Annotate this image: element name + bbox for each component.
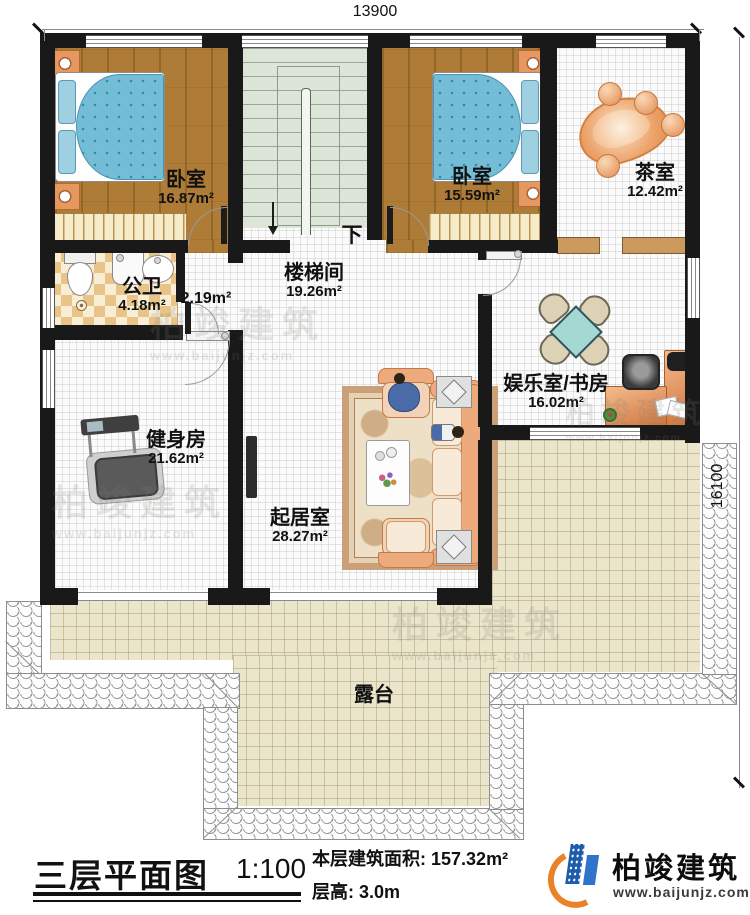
stairs-arrowhead bbox=[268, 226, 278, 235]
wall bbox=[540, 240, 557, 253]
pillow bbox=[521, 80, 539, 124]
wall bbox=[367, 33, 382, 240]
wall bbox=[208, 588, 270, 605]
wall bbox=[228, 33, 243, 263]
roof-tile-border bbox=[489, 703, 524, 810]
room-label-vestibule: 2.19m² bbox=[150, 290, 262, 308]
room-label-terrace: 露台 bbox=[318, 684, 430, 706]
title-underline bbox=[33, 892, 301, 896]
stairs-arrow bbox=[272, 202, 274, 226]
wall bbox=[478, 440, 492, 605]
room-name: 娱乐室/书房 bbox=[466, 373, 646, 395]
drawing-title: 三层平面图 bbox=[34, 849, 209, 897]
stool bbox=[634, 91, 658, 115]
treadmill-arm bbox=[88, 435, 93, 457]
roof-tile-border bbox=[489, 673, 737, 705]
room-label-study: 娱乐室/书房 16.02m² bbox=[466, 373, 646, 412]
terrace-floor bbox=[233, 655, 497, 806]
stairs-direction-text: 下 bbox=[337, 224, 367, 248]
stairs-rail bbox=[301, 88, 311, 235]
wall bbox=[228, 240, 290, 253]
side-table-inlay bbox=[441, 379, 466, 404]
room-name: 楼梯间 bbox=[258, 262, 370, 284]
room-name: 露台 bbox=[318, 684, 430, 706]
wall bbox=[40, 588, 78, 605]
person-sitting-body bbox=[388, 382, 420, 412]
roof-tile-border bbox=[6, 601, 42, 675]
window bbox=[242, 35, 368, 48]
room-name: 茶室 bbox=[599, 162, 711, 184]
window bbox=[42, 288, 55, 328]
roof-tile-border bbox=[6, 673, 240, 709]
brand-name: 柏竣建筑 bbox=[612, 845, 740, 887]
washer-knob bbox=[116, 254, 124, 262]
wardrobe bbox=[52, 213, 187, 243]
room-label-tea-room: 茶室 12.42m² bbox=[599, 162, 711, 201]
person-sitting-head bbox=[394, 373, 405, 384]
room-area: 19.26m² bbox=[258, 284, 370, 301]
table-decor-flowers bbox=[375, 469, 399, 491]
window bbox=[596, 35, 666, 48]
bed-duvet bbox=[76, 74, 164, 180]
door-handle bbox=[514, 250, 522, 258]
sliding-door bbox=[78, 592, 208, 601]
room-label-living-room: 起居室 28.27m² bbox=[244, 507, 356, 546]
stairs-direction-label: 下 bbox=[337, 224, 367, 248]
person-lying-head bbox=[452, 426, 464, 438]
dimension-line bbox=[42, 29, 704, 30]
window bbox=[42, 350, 55, 408]
brand-logo-icon bbox=[548, 842, 606, 904]
wall bbox=[540, 33, 557, 240]
table-decor-bowl bbox=[386, 447, 397, 458]
side-table-inlay bbox=[441, 534, 466, 559]
pillow bbox=[58, 130, 76, 174]
room-area: 15.59m² bbox=[416, 188, 528, 205]
room-name: 起居室 bbox=[244, 507, 356, 529]
terrace-floor bbox=[50, 600, 700, 660]
brand-website: www.baijunjz.com bbox=[613, 884, 750, 900]
stool bbox=[598, 82, 622, 106]
room-area: 16.87m² bbox=[130, 191, 242, 208]
floor-height-info: 层高: 3.0m bbox=[312, 878, 400, 904]
table-decor-bowl bbox=[375, 451, 385, 461]
wardrobe bbox=[428, 213, 552, 242]
dimension-right-value: 16100 bbox=[709, 441, 727, 531]
dimension-top-value: 13900 bbox=[330, 3, 420, 21]
floor-area-value: 157.32m² bbox=[431, 849, 508, 869]
side-table bbox=[436, 530, 472, 564]
sofa-cushion bbox=[432, 448, 462, 496]
sideboard-cabinet bbox=[557, 237, 600, 254]
drawing-scale: 1:100 bbox=[236, 853, 306, 885]
title-underline bbox=[33, 900, 301, 902]
room-name: 卧室 bbox=[416, 166, 528, 188]
sideboard-cabinet bbox=[622, 237, 692, 254]
floor-height-value: 3.0m bbox=[359, 882, 400, 902]
pillow bbox=[58, 80, 76, 124]
wall bbox=[40, 325, 183, 340]
coffee-table bbox=[366, 440, 410, 506]
faucet bbox=[154, 257, 161, 264]
roof-tile-border bbox=[203, 808, 524, 840]
room-label-bedroom1: 卧室 16.87m² bbox=[130, 169, 242, 208]
armchair-back bbox=[378, 552, 434, 568]
room-label-stair-hall: 楼梯间 19.26m² bbox=[258, 262, 370, 301]
wall bbox=[40, 240, 188, 253]
room-area: 21.62m² bbox=[120, 451, 232, 468]
room-label-bedroom2: 卧室 15.59m² bbox=[416, 166, 528, 205]
window bbox=[687, 258, 700, 318]
dimension-extension bbox=[699, 29, 700, 41]
floor-plan-canvas: 卧室 16.87m² 卧室 15.59m² 茶室 12.42m² 公卫 4.18… bbox=[0, 0, 750, 915]
dimension-line bbox=[739, 37, 740, 788]
room-label-gym: 健身房 21.62m² bbox=[120, 429, 232, 468]
room-area: 12.42m² bbox=[599, 184, 711, 201]
sliding-door bbox=[270, 592, 437, 601]
window bbox=[410, 35, 522, 48]
armchair-cushion bbox=[386, 521, 426, 553]
room-name: 卧室 bbox=[130, 169, 242, 191]
wall bbox=[685, 33, 700, 443]
stool bbox=[661, 113, 685, 137]
room-area: 16.02m² bbox=[466, 395, 646, 412]
dimension-extension bbox=[44, 29, 45, 41]
treadmill-screen bbox=[87, 421, 104, 432]
room-area: 28.27m² bbox=[244, 529, 356, 546]
floor-area-label: 本层建筑面积: bbox=[312, 849, 426, 869]
room-name: 健身房 bbox=[120, 429, 232, 451]
tv bbox=[246, 436, 257, 498]
floor-height-label: 层高: bbox=[312, 882, 354, 902]
floor-area-info: 本层建筑面积: 157.32m² bbox=[312, 845, 508, 871]
bed-duvet bbox=[433, 74, 521, 180]
room-area: 2.19m² bbox=[150, 290, 262, 308]
window bbox=[530, 427, 640, 440]
window bbox=[86, 35, 202, 48]
